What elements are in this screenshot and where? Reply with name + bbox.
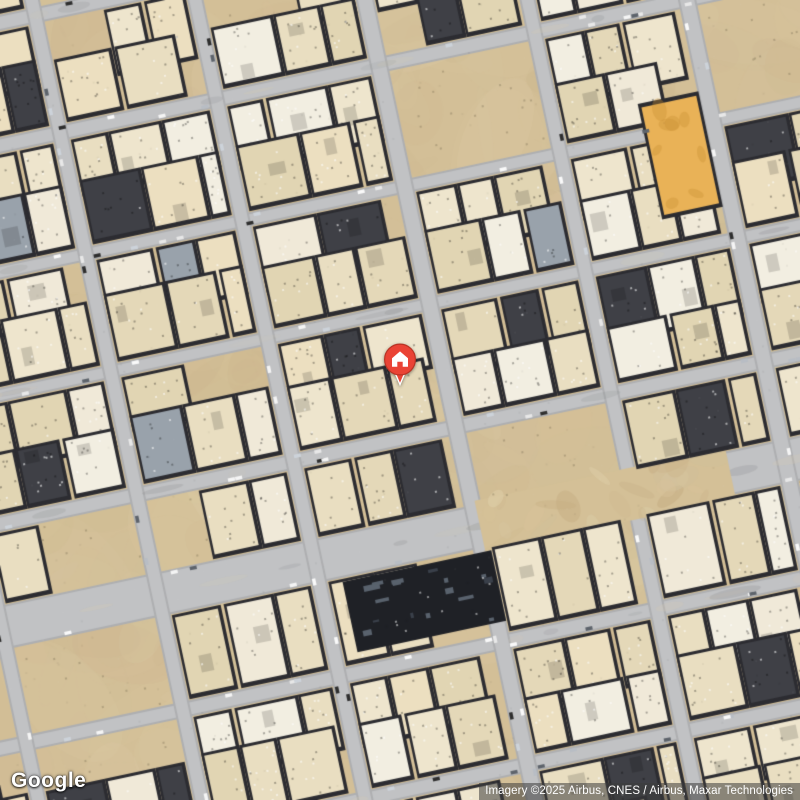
map-viewport: Google Imagery ©2025 Airbus, CNES / Airb… — [0, 0, 800, 800]
home-marker-graphic — [380, 343, 420, 389]
satellite-imagery[interactable] — [0, 0, 800, 800]
home-marker[interactable] — [380, 343, 420, 389]
attribution-bar: Imagery ©2025 Airbus, CNES / Airbus, Max… — [479, 783, 800, 800]
google-logo[interactable]: Google — [11, 769, 86, 793]
attribution-text: Imagery ©2025 Airbus, CNES / Airbus, Max… — [485, 785, 793, 797]
